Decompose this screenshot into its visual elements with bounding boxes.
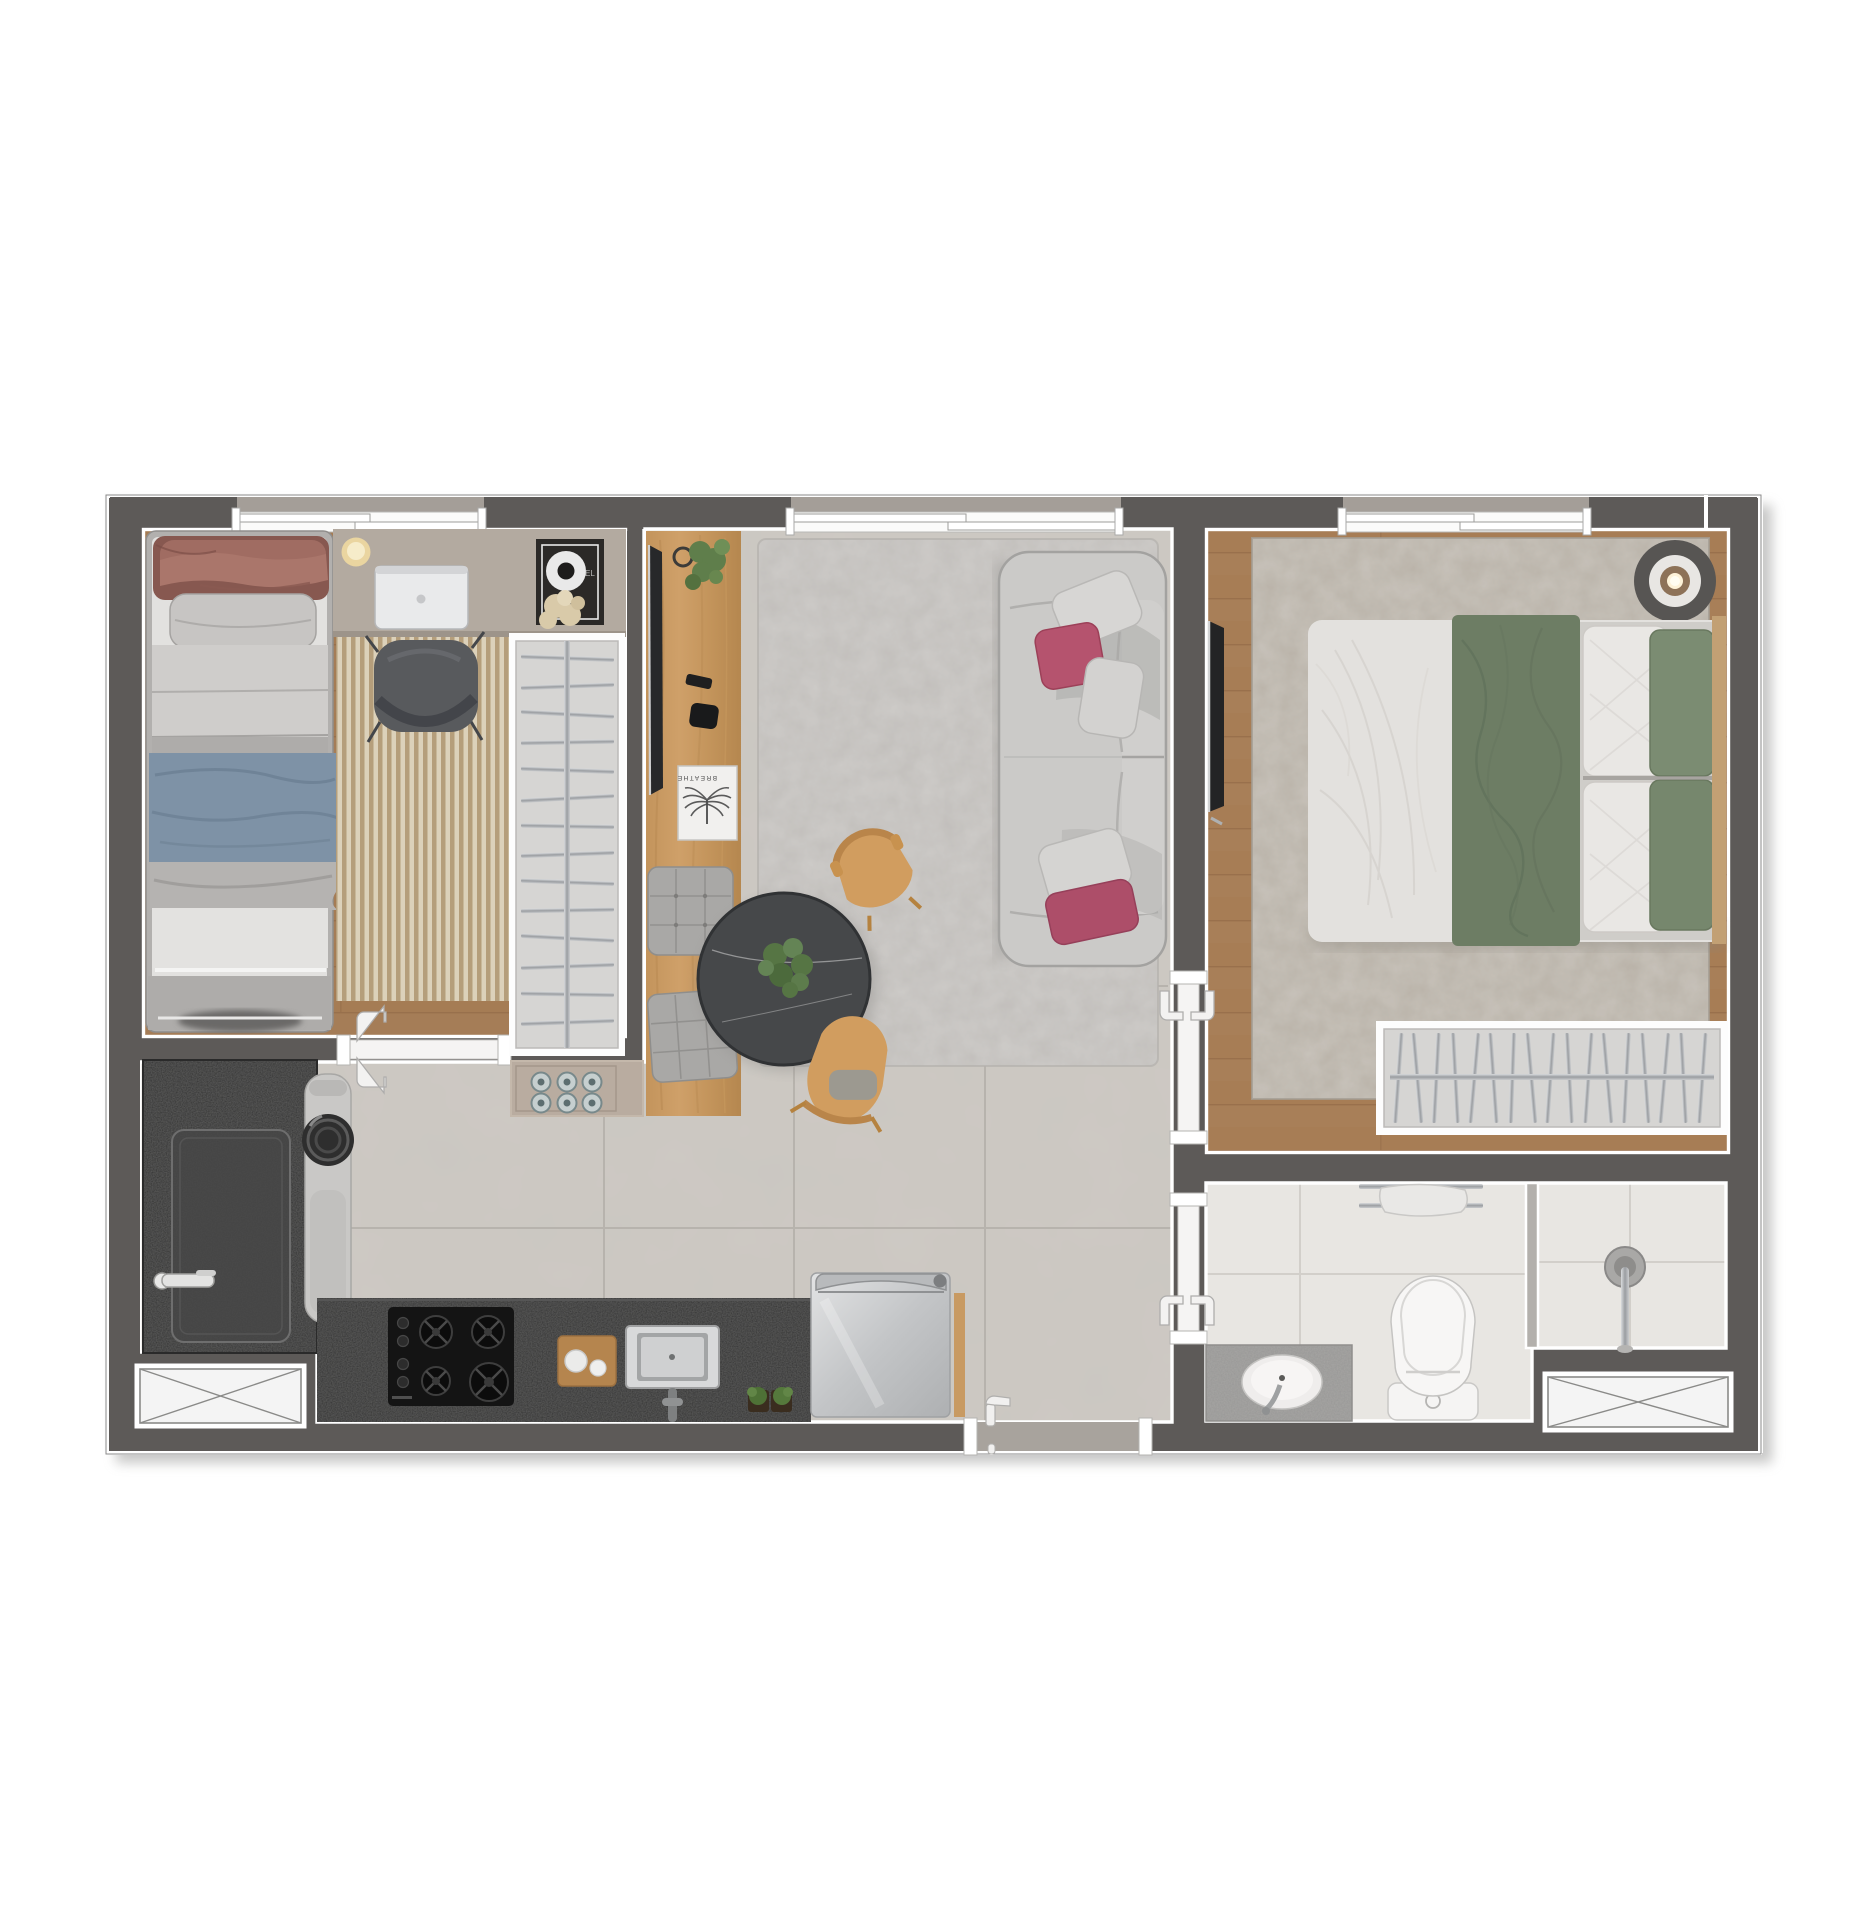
- svg-text:EL: EL: [585, 569, 595, 578]
- svg-text:BREATHE: BREATHE: [676, 774, 717, 781]
